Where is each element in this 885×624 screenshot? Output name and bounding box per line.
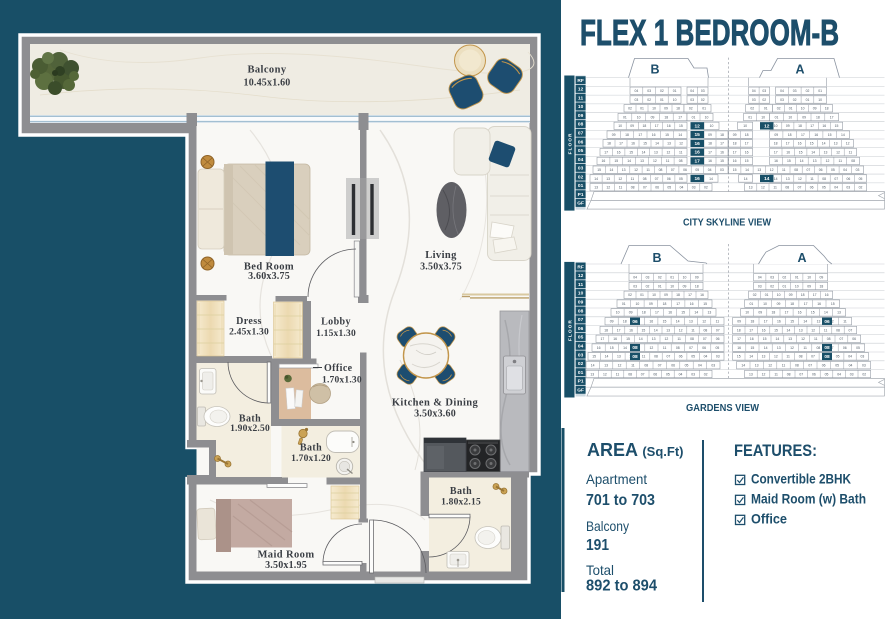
svg-text:14: 14 bbox=[841, 133, 845, 137]
svg-text:13: 13 bbox=[666, 328, 670, 332]
svg-text:06: 06 bbox=[702, 346, 706, 350]
svg-text:12: 12 bbox=[768, 364, 772, 368]
svg-text:17: 17 bbox=[720, 142, 724, 146]
svg-text:05: 05 bbox=[825, 372, 829, 376]
svg-text:18: 18 bbox=[737, 328, 741, 332]
svg-text:12: 12 bbox=[790, 346, 794, 350]
svg-text:08: 08 bbox=[824, 345, 830, 351]
svg-text:01: 01 bbox=[775, 115, 779, 119]
svg-text:Bath: Bath bbox=[450, 486, 472, 497]
svg-text:12: 12 bbox=[667, 150, 671, 154]
svg-text:14: 14 bbox=[824, 311, 828, 315]
svg-text:17: 17 bbox=[708, 150, 712, 154]
svg-text:07: 07 bbox=[807, 168, 811, 172]
svg-text:17: 17 bbox=[804, 302, 808, 306]
svg-text:05: 05 bbox=[822, 186, 826, 190]
svg-text:09: 09 bbox=[802, 115, 806, 119]
svg-text:13: 13 bbox=[824, 150, 828, 154]
svg-text:Balcony: Balcony bbox=[248, 65, 287, 76]
svg-text:13: 13 bbox=[604, 364, 608, 368]
svg-text:FLOOR: FLOOR bbox=[568, 319, 573, 341]
svg-text:16: 16 bbox=[695, 176, 701, 182]
svg-text:07: 07 bbox=[811, 355, 815, 359]
svg-text:10: 10 bbox=[670, 284, 674, 288]
svg-text:17: 17 bbox=[619, 142, 623, 146]
svg-text:15: 15 bbox=[720, 159, 724, 163]
svg-text:17: 17 bbox=[678, 115, 682, 119]
svg-text:01: 01 bbox=[623, 115, 627, 119]
svg-text:11: 11 bbox=[814, 337, 818, 341]
svg-text:Dress: Dress bbox=[236, 316, 262, 327]
svg-text:15: 15 bbox=[597, 168, 601, 172]
svg-text:14: 14 bbox=[610, 168, 614, 172]
svg-text:04: 04 bbox=[752, 89, 756, 93]
svg-text:14: 14 bbox=[800, 159, 804, 163]
svg-text:01: 01 bbox=[789, 107, 793, 111]
svg-text:12: 12 bbox=[618, 364, 622, 368]
svg-text:05: 05 bbox=[578, 335, 584, 341]
svg-text:07: 07 bbox=[643, 186, 647, 190]
svg-text:10: 10 bbox=[652, 293, 656, 297]
svg-text:Apartment: Apartment bbox=[586, 471, 647, 487]
svg-text:11: 11 bbox=[786, 355, 790, 359]
svg-text:11: 11 bbox=[631, 364, 635, 368]
svg-text:06: 06 bbox=[667, 177, 671, 181]
svg-text:14: 14 bbox=[654, 328, 658, 332]
svg-text:14: 14 bbox=[744, 177, 748, 181]
svg-text:701 to 703: 701 to 703 bbox=[586, 492, 655, 509]
svg-text:Bath: Bath bbox=[300, 443, 322, 454]
svg-text:09: 09 bbox=[683, 284, 687, 288]
svg-text:05: 05 bbox=[667, 186, 671, 190]
svg-text:12: 12 bbox=[770, 168, 774, 172]
svg-text:02: 02 bbox=[806, 89, 810, 93]
svg-text:17: 17 bbox=[655, 311, 659, 315]
svg-text:12: 12 bbox=[764, 123, 770, 129]
svg-text:14: 14 bbox=[694, 311, 698, 315]
svg-text:15: 15 bbox=[614, 159, 618, 163]
svg-text:12: 12 bbox=[762, 372, 766, 376]
svg-text:08: 08 bbox=[799, 355, 803, 359]
svg-text:15: 15 bbox=[831, 302, 835, 306]
svg-text:10: 10 bbox=[745, 311, 749, 315]
svg-text:08: 08 bbox=[827, 337, 831, 341]
svg-text:08: 08 bbox=[836, 328, 840, 332]
svg-text:04: 04 bbox=[690, 89, 694, 93]
svg-text:11: 11 bbox=[773, 186, 777, 190]
svg-text:17: 17 bbox=[830, 115, 834, 119]
svg-text:01: 01 bbox=[795, 276, 799, 280]
svg-text:16: 16 bbox=[777, 320, 781, 324]
svg-text:01: 01 bbox=[692, 115, 696, 119]
svg-text:13: 13 bbox=[786, 177, 790, 181]
svg-text:09: 09 bbox=[737, 320, 741, 324]
svg-text:A: A bbox=[795, 63, 804, 77]
svg-text:10: 10 bbox=[636, 302, 640, 306]
svg-text:04: 04 bbox=[698, 364, 702, 368]
svg-text:10: 10 bbox=[673, 98, 677, 102]
svg-text:18: 18 bbox=[788, 133, 792, 137]
svg-text:16: 16 bbox=[817, 302, 821, 306]
svg-text:03: 03 bbox=[711, 364, 715, 368]
svg-text:12: 12 bbox=[801, 337, 805, 341]
svg-text:15: 15 bbox=[663, 320, 667, 324]
svg-text:06: 06 bbox=[824, 319, 830, 325]
svg-text:17: 17 bbox=[676, 302, 680, 306]
svg-text:18: 18 bbox=[604, 328, 608, 332]
svg-text:18: 18 bbox=[643, 124, 647, 128]
svg-text:17: 17 bbox=[749, 328, 753, 332]
svg-text:11: 11 bbox=[803, 346, 807, 350]
svg-text:12: 12 bbox=[578, 87, 584, 93]
svg-text:06: 06 bbox=[716, 337, 720, 341]
svg-text:03: 03 bbox=[758, 284, 762, 288]
svg-text:17: 17 bbox=[764, 320, 768, 324]
svg-text:14: 14 bbox=[764, 176, 770, 182]
svg-text:09: 09 bbox=[789, 293, 793, 297]
svg-text:09: 09 bbox=[610, 320, 614, 324]
svg-text:10: 10 bbox=[618, 124, 622, 128]
svg-text:16: 16 bbox=[733, 159, 737, 163]
svg-text:01: 01 bbox=[578, 370, 584, 376]
svg-text:11: 11 bbox=[666, 159, 670, 163]
svg-text:01: 01 bbox=[764, 107, 768, 111]
svg-text:03: 03 bbox=[578, 166, 584, 172]
svg-text:03: 03 bbox=[701, 89, 705, 93]
svg-text:GARDENS VIEW: GARDENS VIEW bbox=[686, 402, 759, 414]
svg-text:18: 18 bbox=[664, 115, 668, 119]
svg-text:16: 16 bbox=[720, 150, 724, 154]
svg-text:05: 05 bbox=[578, 148, 584, 154]
svg-text:03: 03 bbox=[793, 89, 797, 93]
svg-text:P1: P1 bbox=[578, 192, 584, 198]
svg-text:15: 15 bbox=[737, 355, 741, 359]
svg-text:02: 02 bbox=[647, 98, 651, 102]
svg-text:03: 03 bbox=[720, 168, 724, 172]
svg-text:01: 01 bbox=[660, 98, 664, 102]
svg-text:08: 08 bbox=[679, 159, 683, 163]
svg-text:07: 07 bbox=[799, 372, 803, 376]
svg-text:03: 03 bbox=[716, 355, 720, 359]
svg-text:13: 13 bbox=[640, 159, 644, 163]
svg-text:16: 16 bbox=[649, 320, 653, 324]
svg-text:17: 17 bbox=[733, 150, 737, 154]
svg-text:14: 14 bbox=[642, 150, 646, 154]
svg-text:08: 08 bbox=[631, 186, 635, 190]
svg-text:1.15x1.30: 1.15x1.30 bbox=[316, 329, 356, 339]
svg-text:Lobby: Lobby bbox=[321, 317, 351, 328]
svg-text:Office: Office bbox=[324, 363, 353, 374]
svg-text:02: 02 bbox=[701, 98, 705, 102]
svg-text:16: 16 bbox=[798, 311, 802, 315]
svg-text:06: 06 bbox=[812, 372, 816, 376]
svg-text:08: 08 bbox=[794, 168, 798, 172]
svg-text:18: 18 bbox=[751, 320, 755, 324]
svg-text:17: 17 bbox=[655, 124, 659, 128]
svg-text:04: 04 bbox=[780, 89, 784, 93]
svg-text:04: 04 bbox=[849, 364, 853, 368]
svg-text:RF: RF bbox=[577, 78, 583, 84]
svg-text:05: 05 bbox=[835, 364, 839, 368]
svg-text:18: 18 bbox=[720, 133, 724, 137]
svg-text:08: 08 bbox=[644, 364, 648, 368]
svg-text:18: 18 bbox=[642, 311, 646, 315]
svg-text:01: 01 bbox=[765, 293, 769, 297]
svg-text:09: 09 bbox=[820, 276, 824, 280]
svg-text:09: 09 bbox=[664, 293, 668, 297]
svg-text:17: 17 bbox=[801, 133, 805, 137]
svg-text:10: 10 bbox=[774, 124, 778, 128]
svg-text:02: 02 bbox=[770, 284, 774, 288]
svg-text:13: 13 bbox=[834, 142, 838, 146]
svg-text:10: 10 bbox=[807, 276, 811, 280]
svg-text:17: 17 bbox=[786, 142, 790, 146]
svg-text:14: 14 bbox=[749, 355, 753, 359]
svg-text:01: 01 bbox=[622, 302, 626, 306]
svg-text:18: 18 bbox=[825, 107, 829, 111]
svg-text:Maid Room: Maid Room bbox=[258, 550, 315, 561]
svg-text:09: 09 bbox=[629, 311, 633, 315]
svg-text:07: 07 bbox=[658, 364, 662, 368]
svg-text:15: 15 bbox=[751, 346, 755, 350]
svg-text:08: 08 bbox=[817, 346, 821, 350]
svg-text:05: 05 bbox=[685, 364, 689, 368]
svg-text:3.50x3.75: 3.50x3.75 bbox=[420, 262, 462, 273]
svg-text:17: 17 bbox=[604, 150, 608, 154]
svg-text:03: 03 bbox=[862, 364, 866, 368]
svg-text:17: 17 bbox=[617, 328, 621, 332]
svg-text:07: 07 bbox=[578, 131, 584, 137]
svg-text:08: 08 bbox=[824, 354, 830, 360]
svg-text:14: 14 bbox=[627, 159, 631, 163]
svg-text:18: 18 bbox=[676, 293, 680, 297]
svg-text:18: 18 bbox=[798, 124, 802, 128]
svg-text:08: 08 bbox=[787, 372, 791, 376]
svg-text:11: 11 bbox=[578, 95, 583, 101]
svg-text:12: 12 bbox=[634, 168, 638, 172]
svg-text:09: 09 bbox=[777, 302, 781, 306]
svg-text:10: 10 bbox=[795, 284, 799, 288]
svg-text:11: 11 bbox=[824, 328, 828, 332]
svg-text:16: 16 bbox=[652, 133, 656, 137]
svg-text:16: 16 bbox=[774, 159, 778, 163]
svg-text:14: 14 bbox=[822, 142, 826, 146]
svg-text:02: 02 bbox=[762, 98, 766, 102]
svg-text:01: 01 bbox=[640, 107, 644, 111]
svg-text:18: 18 bbox=[745, 133, 749, 137]
svg-text:14: 14 bbox=[591, 364, 595, 368]
svg-text:12: 12 bbox=[679, 142, 683, 146]
svg-text:08: 08 bbox=[628, 372, 632, 376]
svg-text:1.70x1.30: 1.70x1.30 bbox=[322, 376, 362, 386]
svg-text:02: 02 bbox=[689, 107, 693, 111]
svg-text:11: 11 bbox=[677, 337, 681, 341]
svg-text:16: 16 bbox=[798, 142, 802, 146]
svg-text:13: 13 bbox=[617, 355, 621, 359]
svg-text:13: 13 bbox=[667, 142, 671, 146]
svg-text:04: 04 bbox=[679, 372, 683, 376]
svg-text:12: 12 bbox=[836, 150, 840, 154]
svg-text:07: 07 bbox=[578, 317, 584, 323]
svg-text:15: 15 bbox=[626, 337, 630, 341]
svg-text:03: 03 bbox=[846, 186, 850, 190]
svg-text:01: 01 bbox=[806, 98, 810, 102]
svg-text:15: 15 bbox=[610, 346, 614, 350]
svg-text:16: 16 bbox=[700, 293, 704, 297]
svg-text:06: 06 bbox=[632, 319, 638, 325]
svg-text:02: 02 bbox=[704, 186, 708, 190]
svg-text:09: 09 bbox=[807, 284, 811, 288]
svg-text:12: 12 bbox=[826, 159, 830, 163]
svg-text:03: 03 bbox=[861, 355, 865, 359]
svg-text:03: 03 bbox=[578, 352, 584, 358]
svg-text:11: 11 bbox=[782, 364, 786, 368]
svg-text:11: 11 bbox=[616, 372, 620, 376]
svg-text:13: 13 bbox=[757, 168, 761, 172]
svg-text:10: 10 bbox=[578, 104, 584, 110]
svg-text:2.45x1.30: 2.45x1.30 bbox=[229, 328, 269, 338]
svg-text:14: 14 bbox=[676, 320, 680, 324]
svg-text:16: 16 bbox=[814, 133, 818, 137]
svg-text:08: 08 bbox=[578, 122, 584, 128]
svg-text:03: 03 bbox=[691, 372, 695, 376]
svg-text:08: 08 bbox=[659, 168, 663, 172]
svg-text:16: 16 bbox=[762, 328, 766, 332]
svg-text:18: 18 bbox=[676, 107, 680, 111]
svg-text:13: 13 bbox=[813, 159, 817, 163]
svg-text:18: 18 bbox=[820, 284, 824, 288]
svg-text:13: 13 bbox=[788, 337, 792, 341]
svg-text:17: 17 bbox=[688, 293, 692, 297]
svg-text:18: 18 bbox=[816, 115, 820, 119]
svg-text:18: 18 bbox=[772, 311, 776, 315]
svg-text:03: 03 bbox=[635, 98, 639, 102]
svg-text:06: 06 bbox=[843, 346, 847, 350]
svg-text:14: 14 bbox=[745, 168, 749, 172]
svg-text:11: 11 bbox=[646, 168, 650, 172]
svg-text:10: 10 bbox=[705, 115, 709, 119]
svg-text:09: 09 bbox=[758, 311, 762, 315]
svg-text:14: 14 bbox=[774, 177, 778, 181]
svg-text:13: 13 bbox=[755, 364, 759, 368]
svg-text:02: 02 bbox=[658, 276, 662, 280]
svg-text:892 to 894: 892 to 894 bbox=[586, 578, 657, 595]
svg-text:02: 02 bbox=[859, 186, 863, 190]
svg-text:13: 13 bbox=[590, 372, 594, 376]
svg-text:02: 02 bbox=[704, 372, 708, 376]
svg-text:16: 16 bbox=[631, 142, 635, 146]
svg-text:13: 13 bbox=[799, 328, 803, 332]
svg-text:05: 05 bbox=[716, 346, 720, 350]
svg-text:09: 09 bbox=[649, 302, 653, 306]
svg-text:06: 06 bbox=[671, 364, 675, 368]
svg-text:15: 15 bbox=[810, 142, 814, 146]
svg-text:07: 07 bbox=[641, 372, 645, 376]
svg-text:13: 13 bbox=[689, 320, 693, 324]
svg-text:07: 07 bbox=[808, 364, 812, 368]
svg-text:14: 14 bbox=[803, 320, 807, 324]
svg-text:1.80x2.15: 1.80x2.15 bbox=[441, 498, 481, 508]
svg-text:RF: RF bbox=[577, 264, 583, 270]
svg-text:15: 15 bbox=[679, 124, 683, 128]
svg-text:01: 01 bbox=[673, 89, 677, 93]
svg-text:06: 06 bbox=[683, 168, 687, 172]
svg-text:07: 07 bbox=[840, 337, 844, 341]
svg-text:09: 09 bbox=[733, 133, 737, 137]
svg-text:10: 10 bbox=[683, 276, 687, 280]
svg-text:10: 10 bbox=[801, 107, 805, 111]
svg-text:14: 14 bbox=[655, 142, 659, 146]
svg-text:3.50x1.95: 3.50x1.95 bbox=[265, 560, 307, 571]
svg-text:05: 05 bbox=[695, 168, 699, 172]
svg-text:08: 08 bbox=[578, 308, 584, 314]
svg-text:03: 03 bbox=[690, 98, 694, 102]
svg-text:03: 03 bbox=[752, 98, 756, 102]
svg-text:08: 08 bbox=[676, 346, 680, 350]
svg-text:16: 16 bbox=[597, 346, 601, 350]
svg-text:12: 12 bbox=[606, 186, 610, 190]
svg-text:13: 13 bbox=[708, 311, 712, 315]
svg-text:15: 15 bbox=[665, 133, 669, 137]
svg-text:07: 07 bbox=[689, 346, 693, 350]
svg-text:04: 04 bbox=[708, 168, 712, 172]
svg-text:04: 04 bbox=[635, 89, 639, 93]
svg-text:13: 13 bbox=[777, 346, 781, 350]
svg-text:B: B bbox=[652, 251, 661, 265]
svg-text:01: 01 bbox=[750, 302, 754, 306]
svg-text:12: 12 bbox=[650, 346, 654, 350]
svg-text:18: 18 bbox=[708, 142, 712, 146]
svg-text:02: 02 bbox=[750, 107, 754, 111]
svg-text:13: 13 bbox=[762, 355, 766, 359]
svg-text:06: 06 bbox=[852, 337, 856, 341]
svg-text:191: 191 bbox=[586, 537, 609, 554]
svg-text:07: 07 bbox=[671, 168, 675, 172]
svg-text:16: 16 bbox=[602, 159, 606, 163]
svg-text:03: 03 bbox=[856, 168, 860, 172]
svg-text:04: 04 bbox=[843, 168, 847, 172]
svg-text:16: 16 bbox=[822, 124, 826, 128]
svg-text:15: 15 bbox=[787, 159, 791, 163]
svg-text:06: 06 bbox=[578, 326, 584, 332]
svg-text:16: 16 bbox=[825, 293, 829, 297]
svg-text:04: 04 bbox=[758, 276, 762, 280]
svg-text:Kitchen & Dining: Kitchen & Dining bbox=[392, 398, 479, 409]
svg-text:15: 15 bbox=[745, 159, 749, 163]
svg-text:13: 13 bbox=[749, 372, 753, 376]
svg-text:11: 11 bbox=[631, 177, 635, 181]
svg-text:Convertible 2BHK: Convertible 2BHK bbox=[751, 471, 851, 487]
svg-text:15: 15 bbox=[695, 132, 701, 138]
svg-text:11: 11 bbox=[839, 159, 843, 163]
svg-text:09: 09 bbox=[695, 276, 699, 280]
svg-text:07: 07 bbox=[834, 177, 838, 181]
svg-text:02: 02 bbox=[862, 372, 866, 376]
svg-text:18: 18 bbox=[663, 302, 667, 306]
svg-text:12: 12 bbox=[798, 177, 802, 181]
svg-text:14: 14 bbox=[623, 346, 627, 350]
svg-text:17: 17 bbox=[737, 337, 741, 341]
svg-text:15: 15 bbox=[592, 355, 596, 359]
svg-text:18: 18 bbox=[774, 142, 778, 146]
svg-text:08: 08 bbox=[795, 364, 799, 368]
svg-text:Bath: Bath bbox=[239, 414, 261, 425]
svg-text:11: 11 bbox=[663, 346, 667, 350]
svg-text:11: 11 bbox=[716, 320, 720, 324]
svg-text:12: 12 bbox=[653, 159, 657, 163]
svg-text:18: 18 bbox=[790, 302, 794, 306]
svg-text:12: 12 bbox=[774, 355, 778, 359]
